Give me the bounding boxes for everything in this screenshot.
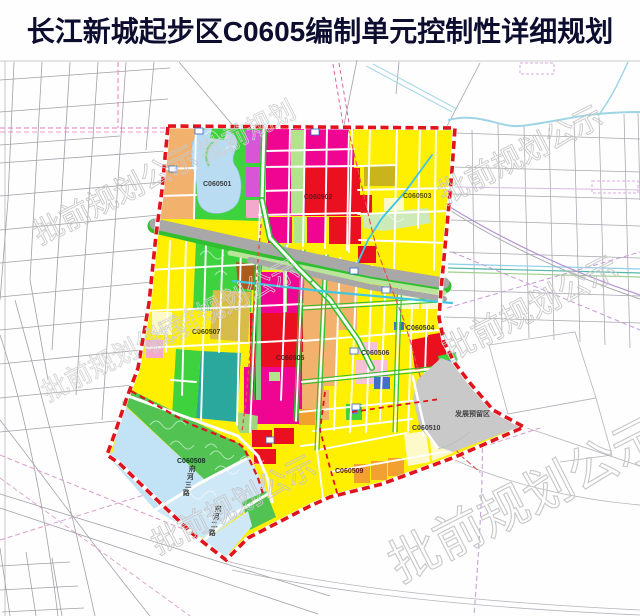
svg-text:C060509: C060509 [335,468,364,475]
svg-text:C060502: C060502 [304,194,333,201]
svg-text:C060506: C060506 [361,350,390,357]
svg-text:C060501: C060501 [203,181,232,188]
svg-text:长江新城起步区C0605编制单元控制性详细规划: 长江新城起步区C0605编制单元控制性详细规划 [27,15,614,47]
svg-text:C060504: C060504 [406,325,435,332]
svg-text:发展预留区: 发展预留区 [454,409,490,418]
svg-text:C060503: C060503 [403,193,432,200]
svg-text:C060505: C060505 [276,355,305,362]
svg-text:C060510: C060510 [412,425,441,432]
svg-text:C060508: C060508 [177,458,206,465]
